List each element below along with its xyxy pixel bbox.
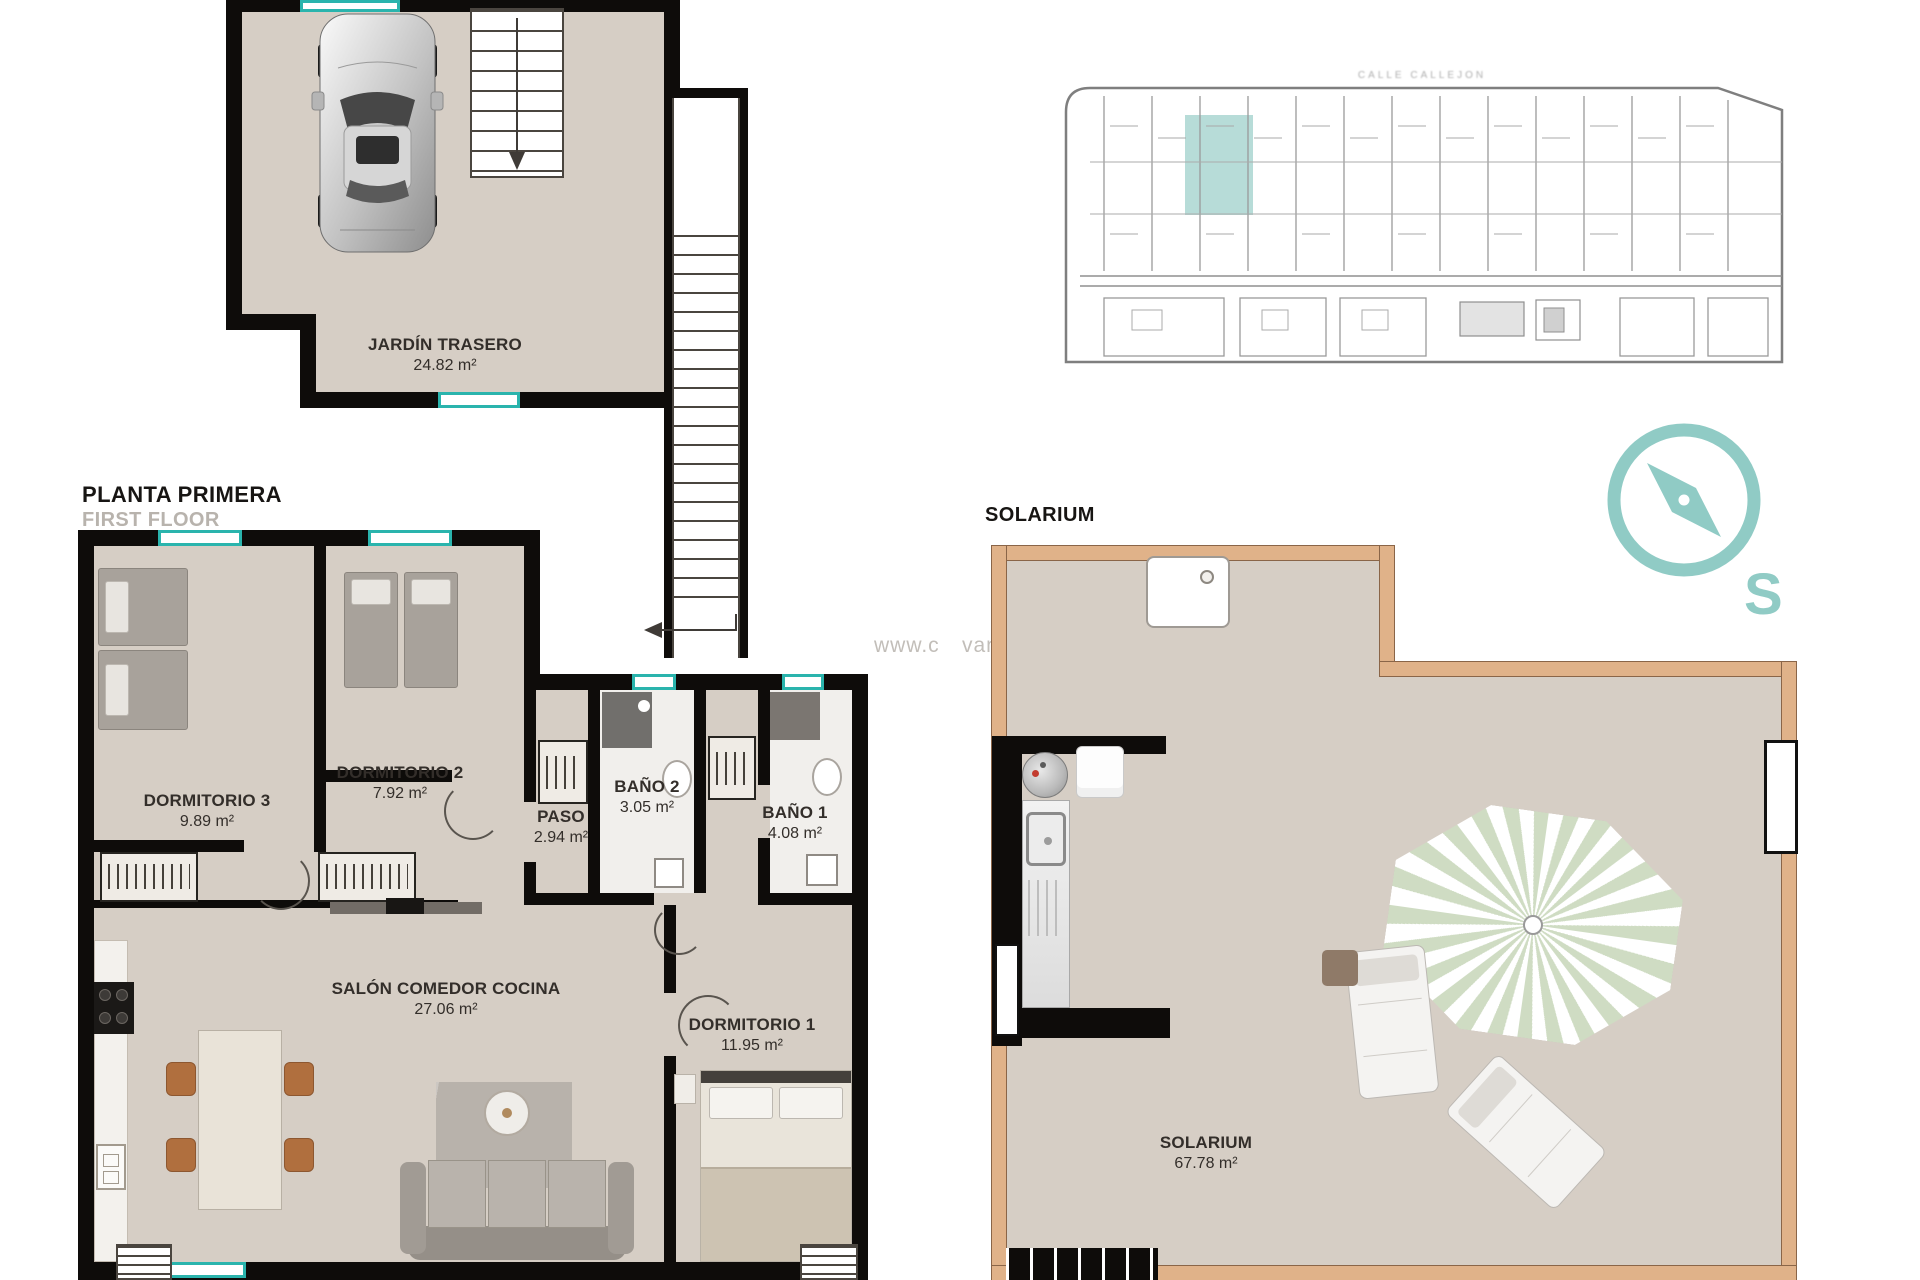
room-label-bano-2: BAÑO 23.05 m² [614,776,679,819]
wall-segment [524,530,540,690]
room-label-solarium: SOLARIUM67.78 m² [1160,1132,1252,1175]
single-bed [344,572,398,688]
door-arc [252,852,310,910]
kitchenette-wall [1022,1008,1170,1038]
wall-segment [226,0,242,330]
car-top-view-icon [310,8,445,258]
lounger-line [1358,998,1422,1006]
lounger-pillow [1353,954,1419,987]
wall-opening [1764,740,1798,854]
chair [166,1138,196,1172]
sofa-cushion [548,1160,606,1228]
burner [99,989,111,1001]
burner [99,1012,111,1024]
wall-segment [588,690,600,893]
sink-bowl [103,1154,119,1167]
drainer-lines [1028,880,1064,936]
stairs-direction-arrow-icon [638,608,742,652]
sink-icon [654,858,684,888]
lounger-line [1528,1129,1572,1177]
chair [284,1062,314,1096]
wall-segment [524,690,536,802]
single-bed [98,568,188,646]
chair [166,1062,196,1096]
stairs [470,8,564,178]
lounger-line [1363,1049,1427,1057]
parasol-pole-icon [1523,915,1543,935]
double-bed [700,1070,852,1262]
knob [1032,770,1039,777]
stair-corridor-steps [674,235,738,607]
outdoor-shower-tray [1146,556,1230,628]
room-label-salon: SALÓN COMEDOR COCINA27.06 m² [332,978,561,1021]
solarium-wall [1380,546,1394,676]
cooktop-icon [94,982,134,1034]
sofa [400,1156,634,1262]
solarium-wall [1380,662,1796,676]
wall-segment [524,893,654,905]
shower-area [770,692,820,740]
wall-segment [664,88,748,98]
wall-segment [78,530,540,546]
pillow [105,664,129,716]
door-opening [995,944,1019,1036]
faucet-dot [1044,837,1052,845]
kitchenette-wall [992,736,1022,856]
floor-plan-page: { "titles": { "floor_title": "PLANTA PRI… [0,0,1920,1280]
knob [1040,762,1046,768]
wall-segment [852,674,868,1280]
pillow [105,581,129,633]
nightstand [674,1074,696,1104]
wall-segment [758,893,852,905]
stairs [1006,1248,1158,1280]
watermark-left: www.c [874,634,940,658]
wall-segment [758,690,770,785]
wall-segment [94,840,244,852]
sofa-arm [400,1162,426,1254]
kitchen-sink-icon [96,1144,126,1190]
drain-icon [1200,570,1214,584]
compass-icon: S [1588,404,1808,634]
pillow [709,1087,773,1119]
room-label-bano-1: BAÑO 14.08 m² [762,802,827,845]
pillow [351,579,391,605]
appliance [1076,746,1124,798]
burner [116,1012,128,1024]
room-label-dormitorio-3: DORMITORIO 39.89 m² [144,790,271,833]
sofa-arm [608,1162,634,1254]
headboard [701,1071,851,1083]
site-plan [1040,66,1810,376]
floor-subtitle: FIRST FLOOR [82,509,220,532]
chair [284,1138,314,1172]
wall-segment [314,546,326,852]
shower-head-icon [638,700,650,712]
room-label-dormitorio-1: DORMITORIO 111.95 m² [689,1014,816,1057]
sofa-cushion [488,1160,546,1228]
room-label-paso: PASO2.94 m² [534,806,588,849]
stairs [800,1244,858,1280]
wardrobe-hangers [708,736,756,800]
wall-segment [694,690,706,893]
stairs [116,1244,172,1280]
window-marker [632,674,676,690]
pillow [779,1087,843,1119]
window-marker [368,530,452,546]
sofa-cushion [428,1160,486,1228]
room-label-dormitorio-2: DORMITORIO 27.92 m² [337,762,464,805]
sink-bowl [103,1171,119,1184]
wardrobe-hangers [318,852,416,902]
door-arc [654,905,704,955]
pillow [411,579,451,605]
toilet-icon [812,758,842,796]
tv-icon [386,898,424,914]
stairs-arrow-icon [470,8,564,178]
highlighted-unit [1185,115,1253,215]
single-bed [98,650,188,730]
wall-segment [740,88,748,658]
coffee-table [484,1090,530,1136]
window-marker [438,392,520,408]
sun-lounger [1344,944,1439,1100]
solarium-title: SOLARIUM [985,504,1095,527]
wardrobe-hangers [100,852,198,902]
table-decor [502,1108,512,1118]
side-table [1322,950,1358,986]
garden-floor [242,12,664,314]
compass-south-letter: S [1744,562,1783,627]
wardrobe-hangers [538,740,588,804]
sink-icon [806,854,838,886]
room-label-jardin-trasero: JARDÍN TRASERO24.82 m² [368,334,522,377]
wall-segment [226,0,676,12]
dining-table [198,1030,282,1210]
gas-hob-icon [1022,752,1068,798]
floor-title: PLANTA PRIMERA [82,482,282,508]
burner [116,989,128,1001]
window-marker [782,674,824,690]
outdoor-sink-icon [1026,812,1066,866]
sofa-back [408,1226,626,1260]
wall-segment [758,838,770,893]
single-bed [404,572,458,688]
window-marker [158,530,242,546]
